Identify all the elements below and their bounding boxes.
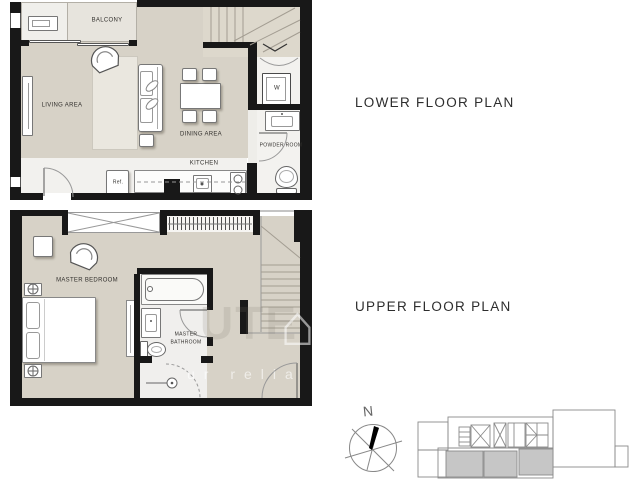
compass-north-label: N	[362, 403, 374, 420]
bed	[22, 297, 96, 363]
wardrobe-post-right	[253, 210, 260, 235]
ledge-post-right	[160, 210, 167, 235]
powder-sink	[265, 111, 300, 131]
upper-left-wall	[10, 210, 22, 406]
sofa	[138, 64, 163, 132]
dining-chair	[182, 68, 197, 81]
lower-plan-title: LOWER FLOOR PLAN	[355, 95, 515, 110]
floorplan-sheet: BALCONY LIVING AREA DINING AREA KITCHEN …	[0, 0, 640, 480]
balcony-post-right	[129, 40, 137, 46]
sliding-door-panel	[29, 40, 81, 43]
washer-bottom-wall	[257, 104, 300, 110]
fridge-label: Ref.	[113, 180, 123, 186]
master-bathroom-label-2: BATHROOM	[171, 340, 202, 346]
lower-left-wall-a	[10, 2, 21, 13]
counter-pier	[164, 179, 180, 193]
lower-top-wall	[137, 0, 312, 7]
shower-divider-left	[140, 356, 152, 363]
kitchen-sink	[193, 175, 212, 193]
living-area-label: LIVING AREA	[42, 103, 83, 110]
window	[10, 13, 21, 28]
key-plan-unit-highlight	[446, 451, 483, 477]
powder-room-label: POWDER ROOM	[260, 143, 303, 149]
upper-top-wall-b	[160, 210, 260, 216]
lower-bottom-wall-b	[71, 193, 312, 200]
dining-area-label: DINING AREA	[180, 132, 222, 139]
dining-table	[180, 83, 221, 109]
dining-chair	[202, 110, 217, 123]
bathtub	[141, 274, 209, 305]
kitchen-powder-pier	[247, 163, 257, 197]
shower-divider-right	[201, 356, 213, 363]
compass	[345, 425, 402, 472]
toilet-bowl	[275, 166, 298, 188]
dining-chair	[202, 68, 217, 81]
lower-bottom-wall-a	[10, 193, 43, 200]
key-plan-unit-highlight	[484, 451, 517, 477]
master-bedroom-label: MASTER BEDROOM	[56, 278, 118, 285]
nightstand	[24, 364, 42, 378]
stair-foyer-floor	[137, 7, 203, 42]
tub-top-wall	[137, 268, 213, 274]
toilet-bowl	[147, 342, 166, 357]
washer-label: W	[274, 86, 280, 93]
bath-left-wall	[134, 274, 140, 400]
compass-needle	[369, 426, 379, 450]
vanity-sink	[141, 308, 161, 338]
bedside-square-table	[33, 236, 53, 257]
hall-stair-wall	[240, 300, 248, 334]
ac-ledge-hatched	[67, 212, 160, 233]
tv-console	[22, 76, 33, 136]
wardrobe-hangers	[169, 217, 252, 230]
key-plan	[418, 410, 628, 478]
lower-left-wall-b	[10, 28, 21, 177]
ac-unit	[28, 16, 58, 31]
dining-chair	[182, 110, 197, 123]
lower-right-wall	[300, 7, 312, 197]
master-bathroom-label-1: MASTER	[175, 332, 198, 338]
upper-plan-title: UPPER FLOOR PLAN	[355, 299, 512, 314]
powder-passage-floor	[248, 110, 257, 163]
rug	[92, 56, 138, 150]
side-table	[139, 134, 154, 147]
upper-bottom-wall	[10, 398, 312, 406]
balcony-label: BALCONY	[92, 18, 123, 25]
kitchen-label: KITCHEN	[190, 161, 218, 168]
dining-service-wall	[248, 42, 257, 110]
nightstand	[24, 283, 42, 296]
balcony-post-left	[21, 40, 29, 46]
ledge-post-left	[62, 210, 68, 235]
sliding-door-panel	[77, 43, 129, 46]
bath-right-wall-lower	[207, 337, 213, 346]
key-plan-unit-highlight	[519, 449, 553, 475]
bath-right-wall-upper	[207, 268, 213, 310]
window	[10, 177, 21, 187]
upper-right-wall	[300, 216, 312, 406]
